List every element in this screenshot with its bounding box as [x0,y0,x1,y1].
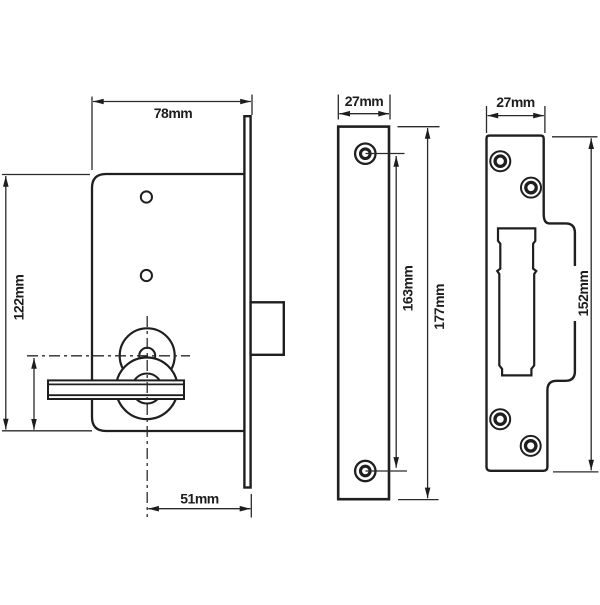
svg-text:27mm: 27mm [345,93,384,109]
svg-text:51mm: 51mm [180,490,219,506]
svg-text:27mm: 27mm [496,94,535,110]
svg-text:122mm: 122mm [10,275,26,321]
svg-text:163mm: 163mm [399,266,415,312]
svg-text:78mm: 78mm [154,105,193,121]
svg-text:177mm: 177mm [431,284,447,330]
svg-text:152mm: 152mm [575,271,591,317]
